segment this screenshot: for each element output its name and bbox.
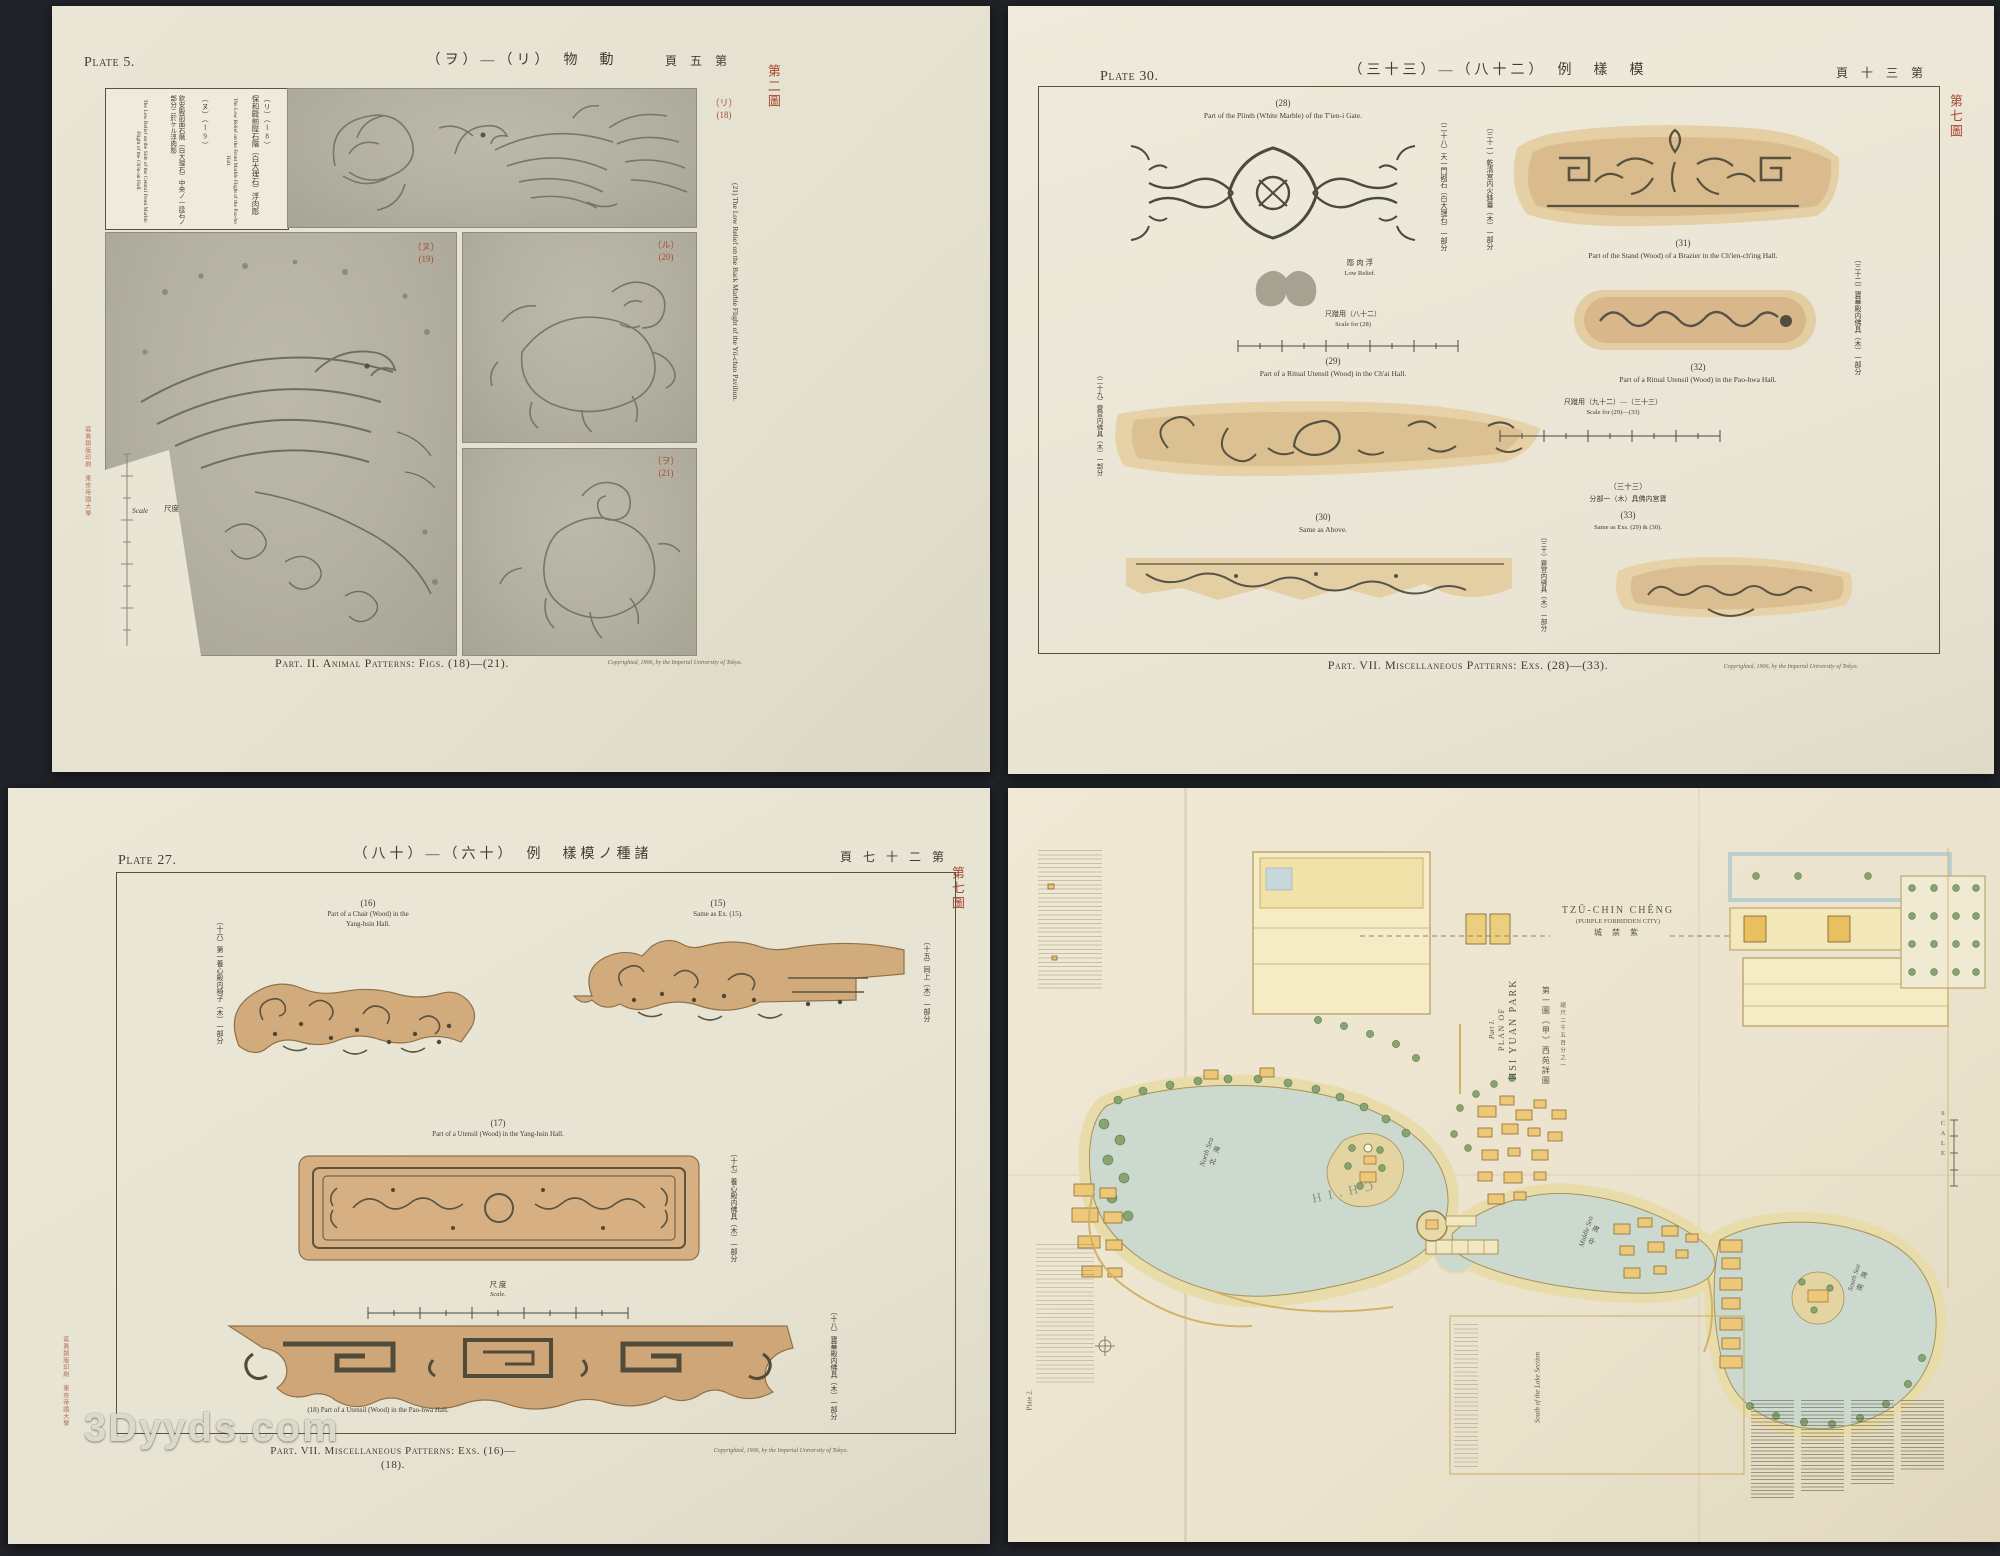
fig18-label: （リ） (18): [702, 98, 746, 121]
fig21-caption-en: (21) The Low Relief on the Back Marble F…: [730, 156, 740, 428]
fig29-number: (29): [1188, 356, 1478, 368]
fig17-caption-jp: （十七）養心殿内佛具（木）一部分: [720, 1150, 738, 1285]
fig33-number: (33): [1568, 510, 1688, 522]
fig28-number: (28): [1138, 98, 1428, 110]
margin-micro-text-top: [1038, 850, 1102, 990]
bracket-carving: [578, 938, 908, 1073]
scale-label-en: Scale.: [408, 1291, 588, 1299]
plan-park-label: HSI YUAN PARK: [1507, 939, 1520, 1119]
brazier-stand-carving: [1503, 114, 1850, 234]
fig29-caption-jp: （二十九）齋宮内佛具（木）一部分: [1084, 372, 1102, 492]
scale28-ruler: [1233, 338, 1463, 354]
caption-panel: （リ）（18） 保和殿前陛石階（白大理石）浮肉彫 The Low Relief …: [105, 88, 289, 230]
fig15-caption-jp: （十五）同上（木）一部分: [913, 938, 931, 1063]
page-number: 頁 七 十 二 第: [798, 850, 948, 866]
fig17-caption-en: Part of a Utensil (Wood) in the Yang-hsi…: [358, 1130, 638, 1139]
relief-label-en: Low Relief.: [1320, 270, 1400, 278]
scale-ruler: [363, 1306, 633, 1320]
fig18-caption-en: The Low Relief on the Front Marble Fligh…: [224, 97, 238, 225]
fig33-caption-en: Same as Exs. (29) & (30).: [1548, 524, 1708, 532]
marble-bridge: [1426, 1240, 1498, 1254]
scale-label-jp: 尺度: [164, 504, 179, 514]
south-sea-lake: [1714, 1222, 1936, 1429]
fig31-caption-jp: （三十一）乾清宮内火鉢臺（木）一部分: [1476, 124, 1494, 284]
site-watermark: 3Dyyds.com: [84, 1406, 340, 1451]
city-title-jp: 城 禁 紫: [1548, 928, 1688, 938]
lion-drawing: [462, 232, 697, 443]
fig16-caption-en-1: Part of a Chair (Wood) in the: [258, 910, 478, 919]
fig31-number: (31): [1568, 238, 1798, 250]
fig18-caption-jp: （十八）寶華殿内佛具（木）一部分: [820, 1308, 838, 1428]
south-section-label: South of the Lake Section: [1533, 1313, 1542, 1463]
low-relief-motif: [1248, 264, 1328, 309]
fig20-label: （ル） (20): [644, 240, 688, 263]
fig33-number-jp: （三十三）: [1568, 482, 1688, 492]
fig19-caption-jp: 欽安殿前面石階（白大理石）中央ノ一段石ノ部分ニ於ケル浮肉彫: [152, 95, 184, 227]
fig33-caption-jp: 分部一（木）具佛内宮寶: [1543, 495, 1713, 504]
fig19-caption-en: The Low Relief on the Side of the Centra…: [134, 97, 148, 225]
scale-all-ruler: [1497, 428, 1723, 444]
photo-phoenix-band: [287, 88, 697, 228]
fig16-number: (16): [258, 898, 478, 910]
scale-label-en: Scale: [132, 506, 148, 516]
compass-mark: [1095, 1336, 1115, 1356]
plate2-label: Plate 2.: [1025, 1351, 1034, 1411]
ritual-utensil-carving-33: [1608, 551, 1853, 623]
ritual-utensil-frieze-29: [1108, 392, 1553, 482]
white-dagoba: [1364, 1144, 1372, 1152]
plate-label: Plate 30.: [1100, 68, 1159, 86]
plan-of-label: PLAN OF: [1497, 939, 1507, 1119]
scale28-label-en: Scale for (28): [1238, 321, 1468, 329]
fig31-caption-en: Part of the Stand (Wood) of a Brazier in…: [1528, 251, 1838, 261]
photo-phoenix-large: [105, 232, 457, 656]
phoenix-band-drawing: [287, 88, 697, 228]
map-legend: [1751, 1400, 1944, 1500]
scale-all-label-jp: 尺蹝用（九十二）―（三十三）: [1503, 398, 1723, 407]
fig18-number-jp: （リ）（18）: [262, 95, 271, 223]
plate-label: Plate 27.: [118, 852, 177, 870]
scale28-label-jp: 尺蹝用（八十二）: [1238, 310, 1468, 319]
page-number: 頁 五 第: [612, 54, 732, 70]
phoenix-large-drawing: [105, 232, 457, 656]
page-plate-30: Plate 30. （三十三）―（八十二） 例 樣 模 頁 十 三 第 第七圖 …: [1008, 6, 1994, 774]
scale-word: SCALE: [1938, 1110, 1946, 1180]
plan-title-block: Part 1. PLAN OF HSI YUAN PARK: [1488, 939, 1520, 1119]
printer-stamp: 寫眞銅版印刷 東京帝國大學: [82, 426, 90, 521]
page-number: 頁 十 三 第: [1798, 66, 1928, 82]
fig30-caption-en: Same as Above.: [1198, 525, 1448, 535]
scale-bar: [1950, 1120, 1958, 1186]
fig15-number: (15): [608, 898, 828, 910]
fig21-label: （ヲ） (21): [644, 456, 688, 479]
plate-title-jp: （八十）―（六十） 例 樣模ノ種諸: [308, 846, 698, 864]
city-title: TZŬ-CHIN CHÊNG: [1548, 904, 1688, 917]
fig32-caption-jp: （三十二）寶華殿内佛具（木）一部分: [1844, 256, 1862, 391]
scanned-plates-collage: Plate 5. （ヲ）―（リ） 物 動 頁 五 第 第二圖 （リ）（18） 保…: [0, 0, 2000, 1556]
copyright-line: Copyrighted, 1906, by the Imperial Unive…: [512, 660, 742, 668]
utensil-panel-carving: [293, 1148, 708, 1268]
figure-stamp: 第七圖: [1946, 94, 1963, 174]
scale-all-label-en: Scale for (29)—(33): [1503, 409, 1723, 417]
fig28-caption-en: Part of the Plinth (White Marble) of the…: [1123, 111, 1443, 121]
fig30-number: (30): [1198, 512, 1448, 524]
ritual-utensil-carving-32: [1560, 276, 1830, 364]
fig19-number-jp: （ヌ）（19）: [200, 95, 209, 223]
bottom-caption: Part. II. Animal Patterns: Figs. (18)—(2…: [232, 656, 552, 672]
forbidden-city-blocks: [1253, 852, 1985, 1026]
margin-micro-text-bottom: [1036, 1244, 1094, 1384]
city-subtitle: (PURPLE FORBIDDEN CITY): [1548, 918, 1688, 926]
fig16-caption-jp: （十六）第一養心殿内椅子（木）一部分: [204, 918, 224, 1093]
fig19-label: （ヌ） (19): [404, 242, 448, 265]
panel-micro-schematics: [1454, 1324, 1478, 1470]
ritual-utensil-frieze-30: [1116, 546, 1521, 612]
plinth-ornament-drawing: [1123, 128, 1423, 258]
relief-label-jp: 彫 肉 浮: [1320, 258, 1400, 268]
cloud-panel-carving: [213, 1320, 803, 1404]
fig29-caption-en: Part of a Ritual Utensil (Wood) in the C…: [1168, 369, 1498, 379]
plate-title-jp: （三十三）―（八十二） 例 樣 模: [1308, 62, 1688, 80]
fig28-caption-jp: （二十八）天一門砌石（白大理石）一部分: [1428, 118, 1448, 298]
fig15-caption-en: Same as Ex. (15).: [608, 910, 828, 919]
page-map-hsi-yuan: TZŬ-CHIN CHÊNG (PURPLE FORBIDDEN CITY) 城…: [1008, 788, 2000, 1542]
chair-part-carving: [223, 950, 473, 1090]
fig30-caption-jp: （三十）齋宮内佛具（木）一部分: [1528, 534, 1546, 644]
fig32-caption-en: Part of a Ritual Utensil (Wood) in the P…: [1553, 375, 1843, 385]
fig32-number: (32): [1558, 362, 1838, 374]
plan-scale-jp: 縮尺二千五百分之一: [1558, 1002, 1565, 1122]
plate-label: Plate 5.: [84, 54, 135, 72]
page-plate-5: Plate 5. （ヲ）―（リ） 物 動 頁 五 第 第二圖 （リ）（18） 保…: [52, 6, 990, 772]
plan-title-jp: 第一圖（甲）西苑詳圖: [1540, 986, 1550, 1136]
fig18-caption-jp: 保和殿前陛石階（白大理石）浮肉彫: [242, 95, 260, 225]
scale-label-jp: 尺 度: [408, 1280, 588, 1290]
plan-part-label: Part 1.: [1488, 939, 1497, 1119]
figure-stamp: 第二圖: [764, 64, 781, 144]
printer-stamp: 寫眞銅版印刷 東京帝國大學: [60, 1336, 68, 1441]
copyright-line: Copyrighted, 1906, by the Imperial Unive…: [558, 1448, 848, 1456]
fig17-number: (17): [388, 1118, 608, 1130]
photo-lion: [462, 232, 697, 443]
copyright-line: Copyrighted, 1906, by the Imperial Unive…: [1568, 664, 1858, 672]
fig16-caption-en-2: Yang-hsin Hall.: [258, 920, 478, 929]
